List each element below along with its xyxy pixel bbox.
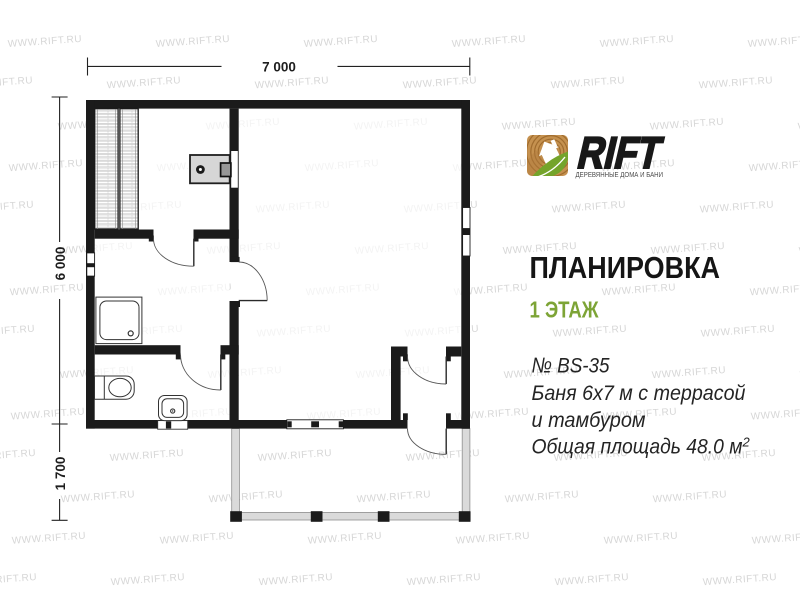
svg-text:Баня 6х7 м с террасой: Баня 6х7 м с террасой — [532, 381, 746, 405]
svg-text:и тамбуром: и тамбуром — [532, 408, 646, 432]
svg-text:1 700: 1 700 — [53, 457, 68, 491]
svg-text:№ BS-35: № BS-35 — [532, 354, 611, 378]
svg-text:7 000: 7 000 — [262, 60, 296, 75]
svg-text:ПЛАНИРОВКА: ПЛАНИРОВКА — [530, 251, 721, 285]
svg-text:ДЕРЕВЯННЫЕ ДОМА И БАНИ: ДЕРЕВЯННЫЕ ДОМА И БАНИ — [576, 170, 664, 179]
svg-text:1 ЭТАЖ: 1 ЭТАЖ — [530, 297, 600, 323]
svg-text:Общая площадь 48.0 м2: Общая площадь 48.0 м2 — [532, 435, 751, 459]
svg-text:6 000: 6 000 — [53, 247, 68, 281]
